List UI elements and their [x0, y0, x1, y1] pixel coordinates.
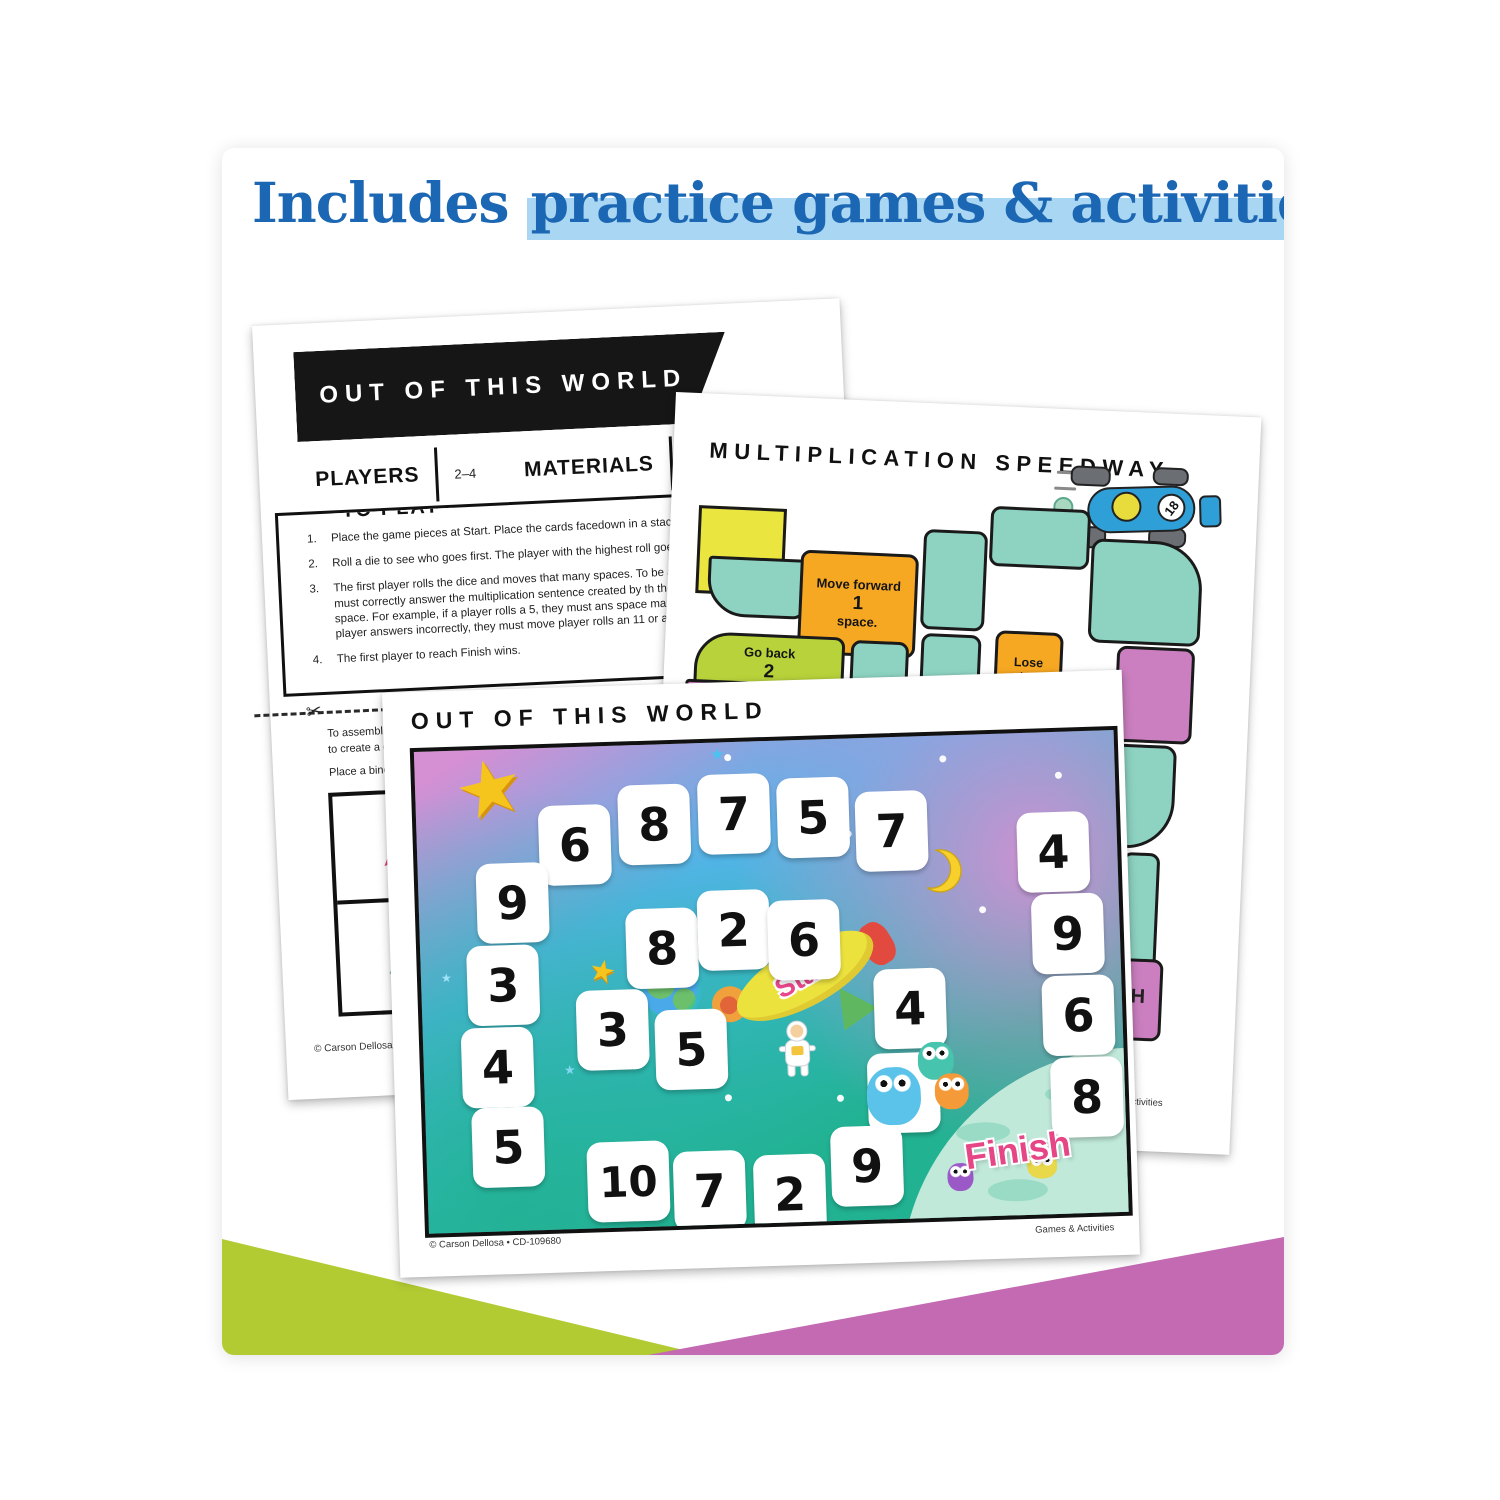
game-title-banner: OUT OF THIS WORLD: [293, 332, 729, 442]
assembly-note-line: to create a c: [328, 740, 389, 759]
number-tile: 9: [830, 1125, 904, 1207]
moon-crater: [988, 1178, 1049, 1202]
track-space: [1113, 645, 1195, 744]
number-tile: 2: [696, 889, 770, 971]
star-dot: [724, 754, 731, 761]
assembly-note-line: Place a bind: [329, 764, 390, 779]
track-space: [920, 529, 988, 632]
small-star-icon: ★: [441, 971, 452, 985]
number-tile: 6: [1041, 974, 1115, 1056]
number-tile: 2: [753, 1153, 827, 1235]
number-tile: 6: [538, 804, 612, 886]
car-nose: [1199, 495, 1222, 528]
board-title: OUT OF THIS WORLD: [410, 697, 769, 735]
label-line: Go back: [744, 645, 796, 662]
number-tile: 7: [854, 790, 928, 872]
finish-label-partial: H: [1130, 985, 1145, 1009]
star-dot: [939, 755, 946, 762]
star-dot: [725, 1094, 732, 1101]
number-tile: 3: [575, 989, 649, 1071]
banner-title: OUT OF THIS WORLD: [293, 332, 729, 442]
players-value: 2–4: [454, 465, 476, 481]
players-label: PLAYERS: [315, 463, 420, 492]
poster-card: Includes practice games & activities OUT…: [222, 148, 1284, 1355]
label-line: Lose: [1014, 655, 1044, 671]
number-tile: 7: [673, 1150, 747, 1232]
star-dot: [1055, 772, 1062, 779]
step-number: 3.: [309, 582, 336, 644]
number-tile: 6: [767, 899, 841, 981]
title-plain: Includes: [252, 170, 527, 235]
step-number: 2.: [308, 557, 333, 573]
car-wheel: [1152, 467, 1189, 487]
assembly-note: To assembl to create a c: [327, 724, 389, 759]
track-space: [706, 556, 809, 620]
star-dot: [837, 1095, 844, 1102]
number-tile: 10: [586, 1140, 670, 1223]
number-tile: 5: [776, 776, 850, 858]
small-star-icon: ★: [564, 1063, 576, 1078]
scissors-icon: ✂: [304, 699, 324, 724]
number-tile: 5: [654, 1008, 728, 1090]
speed-line: [1054, 487, 1076, 490]
monster-icon: [866, 1066, 922, 1126]
number-tile: 3: [466, 944, 540, 1026]
game-board: ★ ★ ★ ★ ★: [410, 726, 1133, 1238]
track-space: [989, 506, 1092, 570]
monster-icon: [934, 1073, 969, 1110]
number-tile: 7: [697, 773, 771, 855]
step-number: 1.: [307, 532, 332, 548]
number-tile: 9: [475, 862, 549, 944]
board-page: OUT OF THIS WORLD ★: [382, 670, 1140, 1278]
label-line: 1: [852, 593, 864, 615]
step-number: 4.: [312, 652, 337, 668]
series-footer: Games & Activities: [1035, 1222, 1115, 1235]
label-line: space.: [837, 614, 878, 631]
page-title: Includes practice games & activities: [252, 170, 1262, 235]
materials-label: MATERIALS: [524, 452, 655, 482]
car-wheel: [1070, 465, 1111, 487]
number-tile: 8: [625, 907, 699, 989]
number-tile: 5: [471, 1106, 545, 1188]
number-tile: 8: [617, 783, 691, 865]
car-number: 18: [1161, 497, 1182, 518]
star-icon: ★: [445, 737, 532, 840]
number-tile: 4: [461, 1026, 535, 1108]
small-star-icon: ★: [710, 744, 725, 763]
divider: [434, 447, 440, 501]
small-star-icon: ★: [585, 952, 619, 992]
number-tile: 4: [873, 967, 947, 1049]
copyright-footer: © Carson Dellosa • CD-109680: [429, 1236, 561, 1251]
track-space: [1087, 538, 1203, 647]
number-tile: 9: [1031, 892, 1105, 974]
product-image: Includes practice games & activities OUT…: [0, 0, 1500, 1500]
title-highlighted: practice games & activities: [527, 170, 1284, 240]
astronaut-icon: [774, 1019, 820, 1078]
star-dot: [979, 906, 986, 913]
number-tile: 4: [1016, 811, 1090, 893]
